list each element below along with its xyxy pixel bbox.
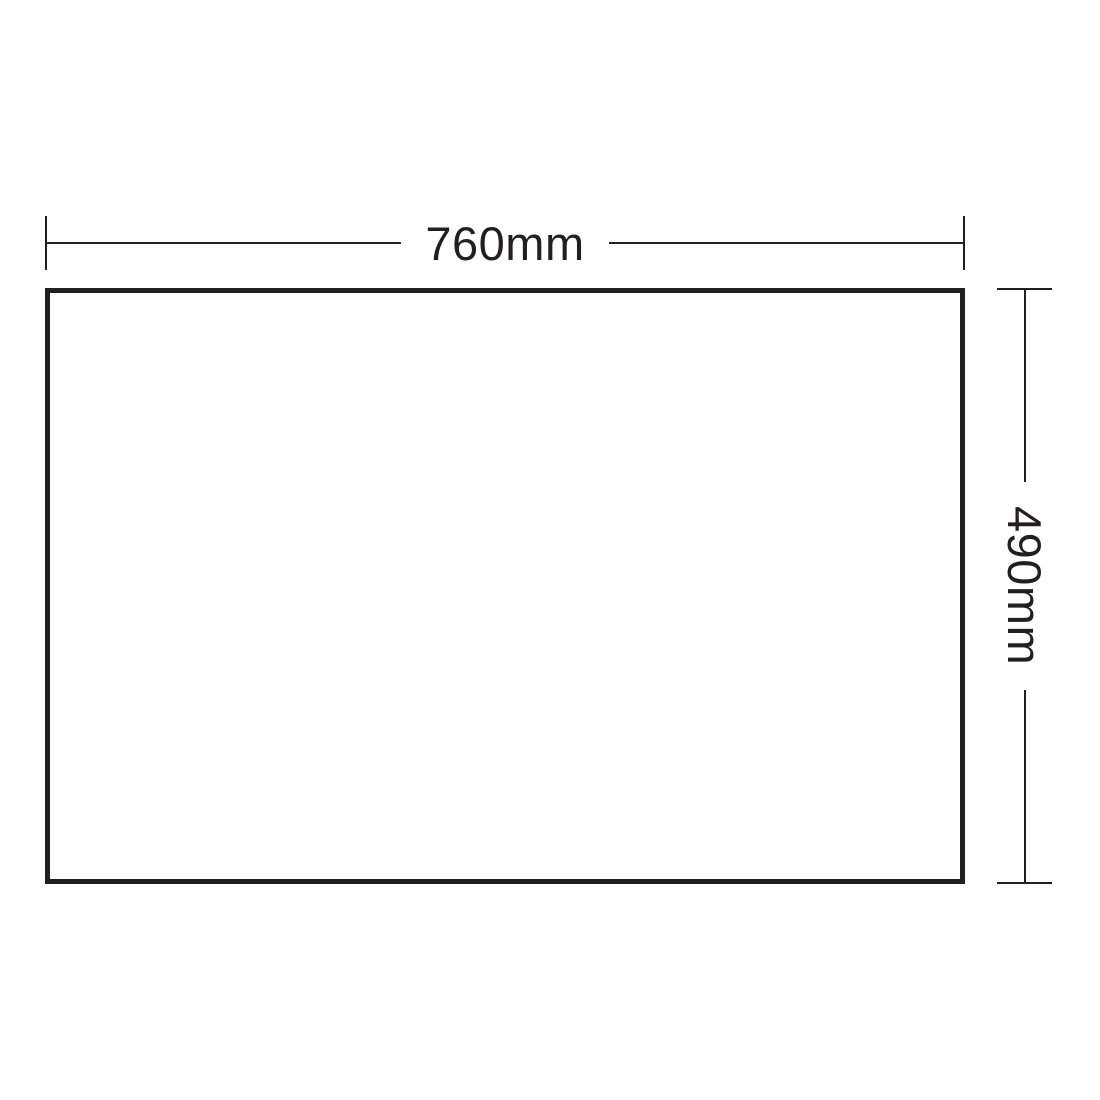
height-dimension: 490mm (997, 288, 1052, 884)
width-dim-tick-right (963, 216, 965, 270)
panel-outline (45, 288, 965, 884)
width-dim-line-right (609, 242, 963, 244)
height-dim-line-top (1024, 290, 1026, 482)
height-dim-line: 490mm (997, 290, 1052, 882)
height-dim-tick-bottom (997, 882, 1052, 884)
height-dimension-label: 490mm (1001, 482, 1048, 689)
height-dim-line-bottom (1024, 690, 1026, 882)
width-dimension-label: 760mm (401, 220, 608, 267)
dimension-diagram: 760mm 490mm (0, 0, 1100, 1100)
width-dim-line-left (47, 242, 401, 244)
width-dimension: 760mm (45, 216, 965, 270)
width-dim-line: 760mm (47, 216, 963, 270)
